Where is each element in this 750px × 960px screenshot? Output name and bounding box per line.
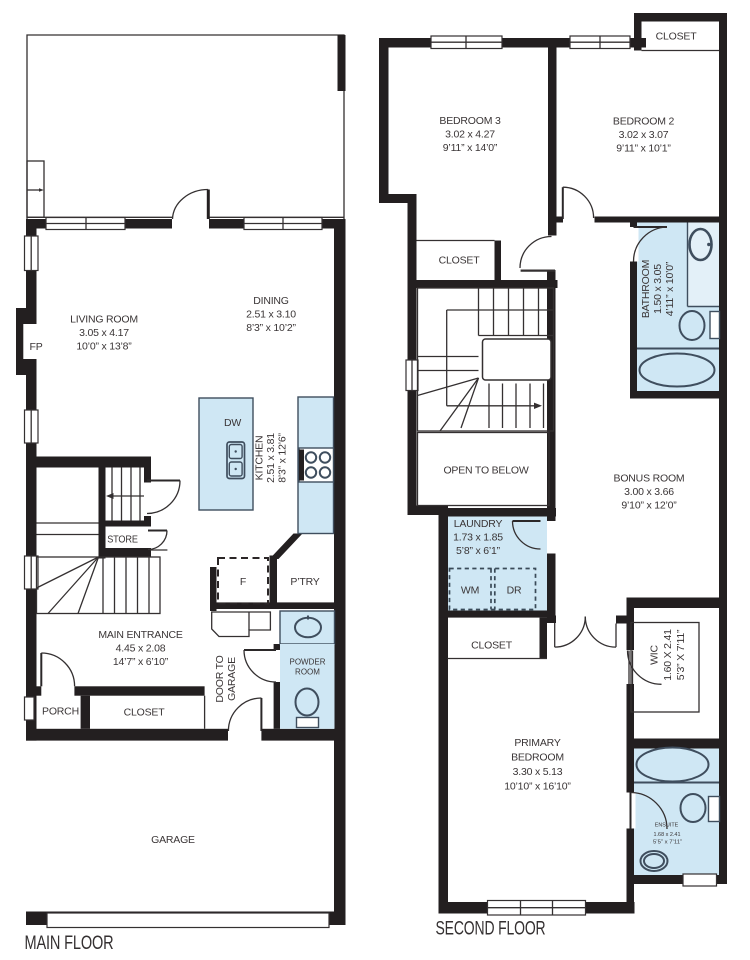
- svg-text:3.02 x 4.27: 3.02 x 4.27: [445, 129, 495, 141]
- svg-text:GARAGE: GARAGE: [151, 834, 195, 846]
- svg-text:PRIMARY: PRIMARY: [514, 737, 560, 749]
- svg-text:3.00 x 3.66: 3.00 x 3.66: [624, 486, 674, 498]
- svg-text:3.30 x 5.13: 3.30 x 5.13: [513, 766, 563, 778]
- svg-text:FP: FP: [30, 341, 43, 353]
- svg-text:MAIN ENTRANCE: MAIN ENTRANCE: [98, 629, 183, 641]
- svg-text:DOOR TO: DOOR TO: [214, 655, 226, 702]
- svg-text:BEDROOM 2: BEDROOM 2: [613, 116, 675, 128]
- svg-text:4’11” x 10’0”: 4’11” x 10’0”: [664, 261, 676, 316]
- svg-text:4.45 x 2.08: 4.45 x 2.08: [116, 643, 166, 655]
- svg-text:9’10” x 12’0”: 9’10” x 12’0”: [621, 500, 677, 512]
- svg-text:CLOSET: CLOSET: [124, 707, 166, 719]
- svg-text:5’5” x 7’11”: 5’5” x 7’11”: [653, 840, 682, 846]
- svg-text:DINING: DINING: [253, 295, 289, 307]
- svg-text:P’TRY: P’TRY: [290, 576, 319, 588]
- svg-text:5’3” X 7’11”: 5’3” X 7’11”: [675, 629, 687, 680]
- svg-text:14’7” x 6’10”: 14’7” x 6’10”: [113, 656, 169, 668]
- svg-text:GARAGE: GARAGE: [226, 657, 238, 701]
- svg-text:9’11” x 14’0”: 9’11” x 14’0”: [443, 142, 498, 154]
- svg-text:DR: DR: [507, 585, 522, 597]
- svg-text:KITCHEN: KITCHEN: [254, 436, 266, 481]
- svg-text:SECOND FLOOR: SECOND FLOOR: [436, 919, 546, 940]
- svg-text:DW: DW: [224, 417, 241, 429]
- svg-text:STORE: STORE: [107, 534, 138, 546]
- svg-text:10’0” x 13’8”: 10’0” x 13’8”: [76, 341, 132, 353]
- svg-text:WIC: WIC: [649, 644, 661, 664]
- svg-text:10’10” x 16’10”: 10’10” x 16’10”: [504, 781, 571, 793]
- svg-text:CLOSET: CLOSET: [656, 31, 698, 43]
- svg-text:5’8” x 6’1”: 5’8” x 6’1”: [456, 545, 501, 557]
- svg-text:1.60 X 2.41: 1.60 X 2.41: [662, 629, 674, 681]
- svg-text:1.68 x 2.41: 1.68 x 2.41: [654, 832, 681, 838]
- svg-text:BATHROOM: BATHROOM: [640, 260, 652, 318]
- svg-text:F: F: [240, 576, 246, 588]
- svg-text:ROOM: ROOM: [295, 668, 320, 677]
- svg-text:3.02 x 3.07: 3.02 x 3.07: [619, 129, 669, 141]
- svg-text:POWDER: POWDER: [290, 658, 326, 667]
- svg-text:3.05 x 4.17: 3.05 x 4.17: [79, 327, 129, 339]
- svg-text:OPEN TO BELOW: OPEN TO BELOW: [443, 465, 528, 477]
- svg-text:CLOSET: CLOSET: [471, 640, 513, 652]
- svg-text:WM: WM: [461, 585, 479, 597]
- svg-text:8’3” x 10’2”: 8’3” x 10’2”: [246, 322, 296, 334]
- svg-text:8’3” x 12’6”: 8’3” x 12’6”: [277, 433, 289, 483]
- svg-text:9’11” x 10’1”: 9’11” x 10’1”: [616, 143, 671, 155]
- svg-text:BEDROOM: BEDROOM: [511, 752, 564, 764]
- svg-text:LIVING ROOM: LIVING ROOM: [70, 314, 138, 326]
- svg-text:BONUS ROOM: BONUS ROOM: [614, 473, 685, 485]
- svg-text:PORCH: PORCH: [42, 706, 79, 718]
- svg-text:2.51 x 3.81: 2.51 x 3.81: [265, 433, 277, 483]
- svg-text:BEDROOM 3: BEDROOM 3: [439, 115, 501, 127]
- svg-text:CLOSET: CLOSET: [439, 255, 481, 267]
- svg-text:2.51 x 3.10: 2.51 x 3.10: [246, 309, 296, 321]
- svg-text:LAUNDRY: LAUNDRY: [454, 518, 503, 530]
- svg-text:1.73 x 1.85: 1.73 x 1.85: [453, 532, 503, 544]
- svg-text:ENSUITE: ENSUITE: [655, 823, 679, 829]
- svg-text:1.50 x 3.05: 1.50 x 3.05: [652, 264, 664, 314]
- svg-text:MAIN FLOOR: MAIN FLOOR: [25, 933, 114, 954]
